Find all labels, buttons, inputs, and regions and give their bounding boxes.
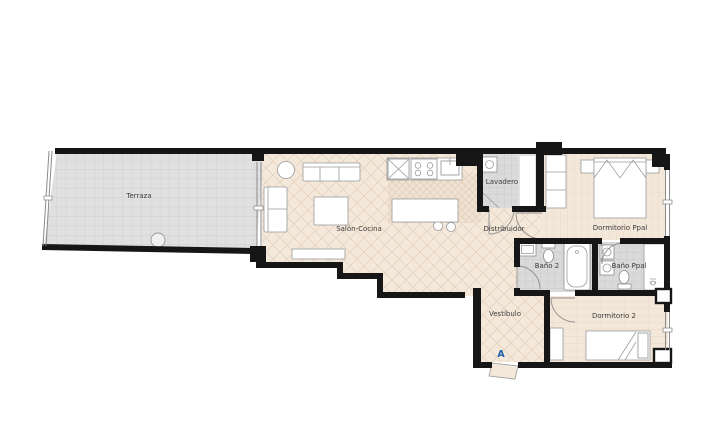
floor-plan-drawing: Terraza Salón-Cocina Lavadero Distribuid… bbox=[0, 0, 705, 439]
tv-cabinet-icon bbox=[292, 249, 345, 259]
terrace-room bbox=[44, 151, 264, 250]
room-label-bano-2: Baño 2 bbox=[535, 262, 560, 270]
toilet-icon bbox=[619, 271, 629, 284]
hob-icon bbox=[411, 159, 437, 179]
washer-icon bbox=[482, 157, 497, 172]
stool-icon bbox=[434, 222, 443, 231]
bed-pillow bbox=[638, 333, 648, 358]
room-label-distribuidor: Distribuidor bbox=[484, 225, 525, 233]
laundry-duct bbox=[519, 155, 536, 207]
entrance-door-leaf bbox=[489, 363, 518, 379]
room-label-salon-cocina: Salón-Cocina bbox=[336, 225, 382, 233]
armchair-icon bbox=[264, 187, 287, 232]
stool-icon bbox=[447, 223, 456, 232]
round-table-icon bbox=[278, 162, 295, 179]
toilet-icon bbox=[544, 250, 554, 263]
room-label-dormitorio-2: Dormitorio 2 bbox=[592, 312, 636, 320]
terrace-drain-icon bbox=[151, 233, 165, 247]
room-label-bano-ppal: Baño Ppal bbox=[612, 262, 647, 270]
entrance-marker: A bbox=[497, 349, 505, 360]
wardrobe-icon bbox=[546, 155, 566, 208]
coffee-table-icon bbox=[314, 197, 348, 225]
floor-plan-canvas: Terraza Salón-Cocina Lavadero Distribuid… bbox=[0, 0, 705, 439]
nightstand-icon bbox=[581, 160, 594, 173]
kitchen-island bbox=[392, 199, 458, 222]
room-label-lavadero: Lavadero bbox=[486, 178, 518, 186]
room-label-dormitorio-ppal: Dormitorio Ppal bbox=[593, 224, 648, 232]
room-label-terraza: Terraza bbox=[125, 192, 151, 200]
wardrobe-icon bbox=[550, 328, 563, 360]
room-label-vestibulo: Vestíbulo bbox=[489, 310, 521, 318]
toilet-tank bbox=[618, 284, 631, 289]
sofa-icon bbox=[303, 163, 360, 181]
